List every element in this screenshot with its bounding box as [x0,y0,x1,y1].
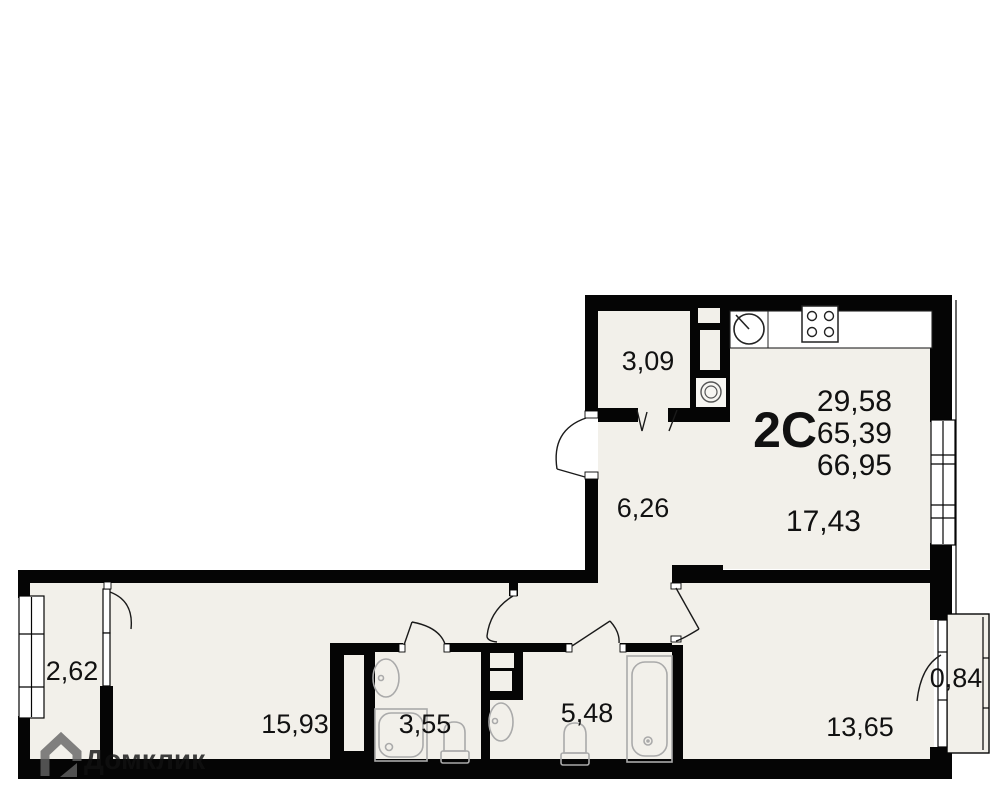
wall-bath-top-right [620,643,672,652]
wall-right-mid [930,543,952,620]
shaft-inset [490,671,512,691]
summary-area-main: 65,39 [817,417,892,450]
wall-top [585,295,952,311]
room-area-balcony-left: 2,62 [46,656,99,686]
wall-left-upper [585,295,598,415]
entrance-door-swing-icon [556,418,586,477]
brand-watermark-text: Домклик [84,744,206,775]
room-area-bedroom-left: 15,93 [261,709,329,739]
shaft-inset [490,653,514,668]
room-area-kitchen-living: 17,43 [786,505,861,538]
window-icon [19,596,44,718]
balcony-left-partition [103,589,110,686]
room-area-hallway: 6,26 [617,493,670,523]
summary-living-area: 29,58 [817,385,892,418]
room-area-balcony-right: 0,84 [930,663,983,693]
window-icon [931,420,955,545]
washing-machine-icon [695,377,727,408]
shaft-inset [700,330,720,370]
wall-left-lower [585,477,598,582]
shaft-inset [344,655,364,751]
shaft-inset [698,308,720,323]
room-area-bathroom: 5,48 [561,698,614,728]
floor-plan: 3,09 6,26 2,62 15,93 3,55 5,48 13,65 0,8… [0,0,1000,800]
room-area-shower-room: 3,55 [399,709,452,739]
wall-balcony-left-upper [18,570,30,598]
stove-icon [802,306,838,342]
wall-storage-bottom-left [598,408,638,422]
wall-bedroom-right-top-thick [672,565,723,583]
summary-area-total: 66,95 [817,449,892,482]
wall-storage-bottom-right [668,408,730,422]
room-area-bedroom-right: 13,65 [826,712,894,742]
plan-type-label: 2С [753,402,817,458]
wall-right-upper [930,295,952,422]
wall-bedroom-right-top [723,570,932,583]
wall-bathroom-right [672,645,683,760]
room-area-storage: 3,09 [622,346,675,376]
wall-balcony-left-lower [18,716,30,762]
